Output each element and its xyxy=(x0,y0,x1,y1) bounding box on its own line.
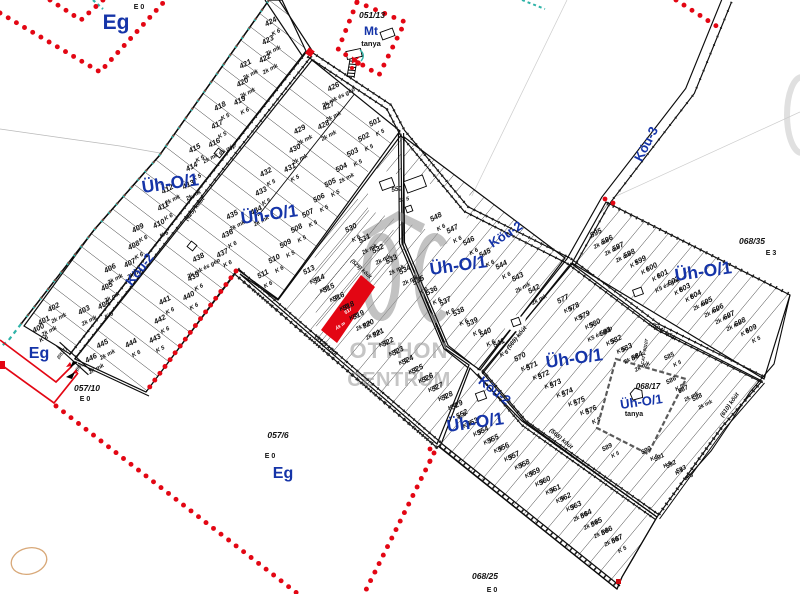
svg-text:068/25: 068/25 xyxy=(472,571,498,581)
svg-text:057/10: 057/10 xyxy=(74,383,100,393)
svg-text:068/35: 068/35 xyxy=(739,236,765,246)
svg-text:E 3: E 3 xyxy=(766,250,777,257)
svg-text:051/13: 051/13 xyxy=(359,10,385,20)
svg-text:tanya: tanya xyxy=(361,39,381,48)
svg-text:057/6: 057/6 xyxy=(267,430,289,440)
svg-text:E 0: E 0 xyxy=(265,453,276,460)
svg-text:Eg: Eg xyxy=(103,11,130,34)
svg-text:E 0: E 0 xyxy=(487,587,498,594)
svg-text:E 0: E 0 xyxy=(80,396,91,403)
svg-text:E 0: E 0 xyxy=(134,4,145,11)
svg-text:Mt: Mt xyxy=(364,24,378,38)
svg-text:Eg: Eg xyxy=(273,465,293,482)
svg-text:068/17: 068/17 xyxy=(636,382,661,391)
svg-text:Eg: Eg xyxy=(29,345,49,362)
svg-text:tanya: tanya xyxy=(625,411,643,418)
